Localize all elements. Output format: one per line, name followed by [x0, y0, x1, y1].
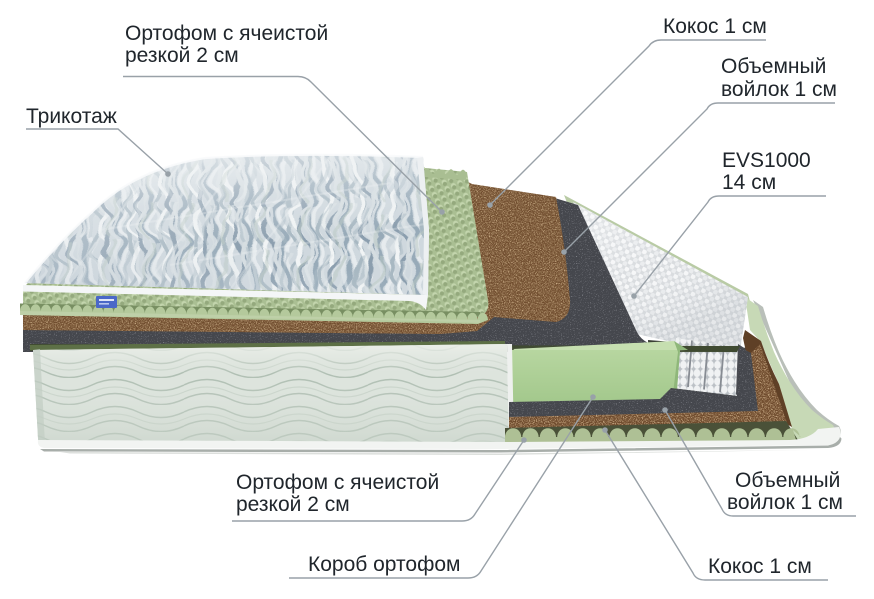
svg-text:Кокос 1 см: Кокос 1 см [663, 15, 767, 38]
svg-text:Кокос 1 см: Кокос 1 см [708, 555, 812, 578]
svg-text:14 см: 14 см [722, 171, 776, 194]
svg-text:Ортофом с ячеистой: Ортофом с ячеистой [236, 471, 439, 494]
svg-text:EVS1000: EVS1000 [722, 149, 811, 172]
svg-text:войлок 1 см: войлок 1 см [721, 78, 837, 101]
svg-text:Объемный: Объемный [721, 55, 826, 78]
svg-text:резкой 2 см: резкой 2 см [236, 493, 350, 516]
svg-text:Трикотаж: Трикотаж [26, 105, 117, 128]
svg-text:резкой 2 см: резкой 2 см [125, 44, 239, 67]
svg-text:Короб ортофом: Короб ортофом [308, 553, 461, 576]
svg-text:Объемный: Объемный [735, 469, 840, 492]
svg-text:войлок 1 см: войлок 1 см [727, 491, 843, 514]
svg-text:Ортофом с ячеистой: Ортофом с ячеистой [125, 22, 328, 45]
